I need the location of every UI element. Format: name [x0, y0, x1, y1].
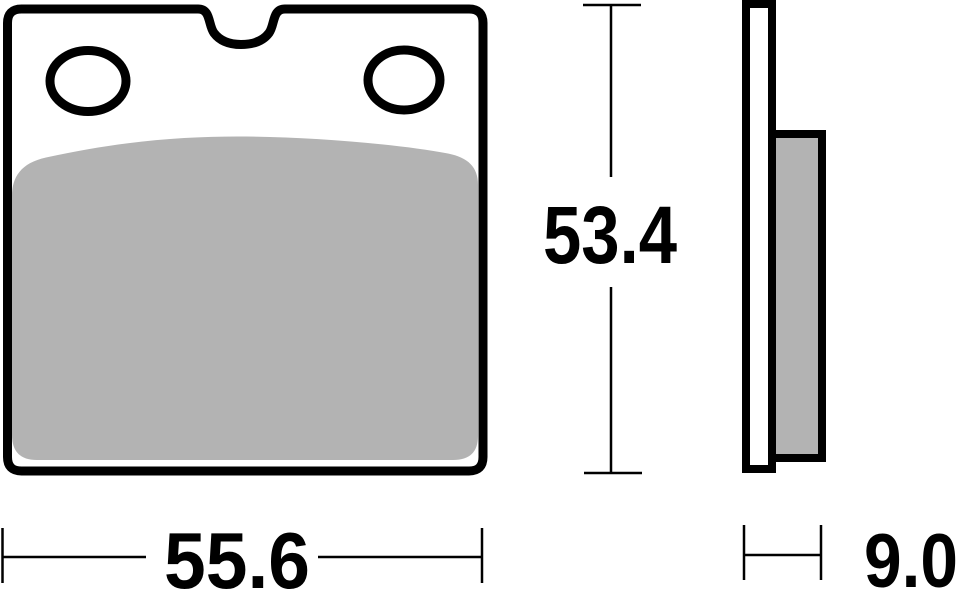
technical-drawing-page: 53.4 55.6 9.0: [0, 0, 960, 590]
front-view: [8, 9, 484, 471]
thickness-dimension-label: 9.0: [864, 519, 958, 590]
width-dimension-label: 55.6: [164, 516, 310, 590]
side-view: [746, 4, 822, 469]
height-dimension-label: 53.4: [543, 190, 677, 281]
thickness-dimension: [744, 525, 821, 580]
mounting-hole-right-icon: [368, 50, 440, 110]
backing-plate-side: [746, 4, 772, 469]
mounting-hole-left-icon: [50, 51, 126, 112]
brake-pad-drawing: 53.4 55.6 9.0: [0, 0, 960, 590]
friction-material-front: [12, 137, 478, 461]
friction-material-side: [772, 134, 822, 458]
